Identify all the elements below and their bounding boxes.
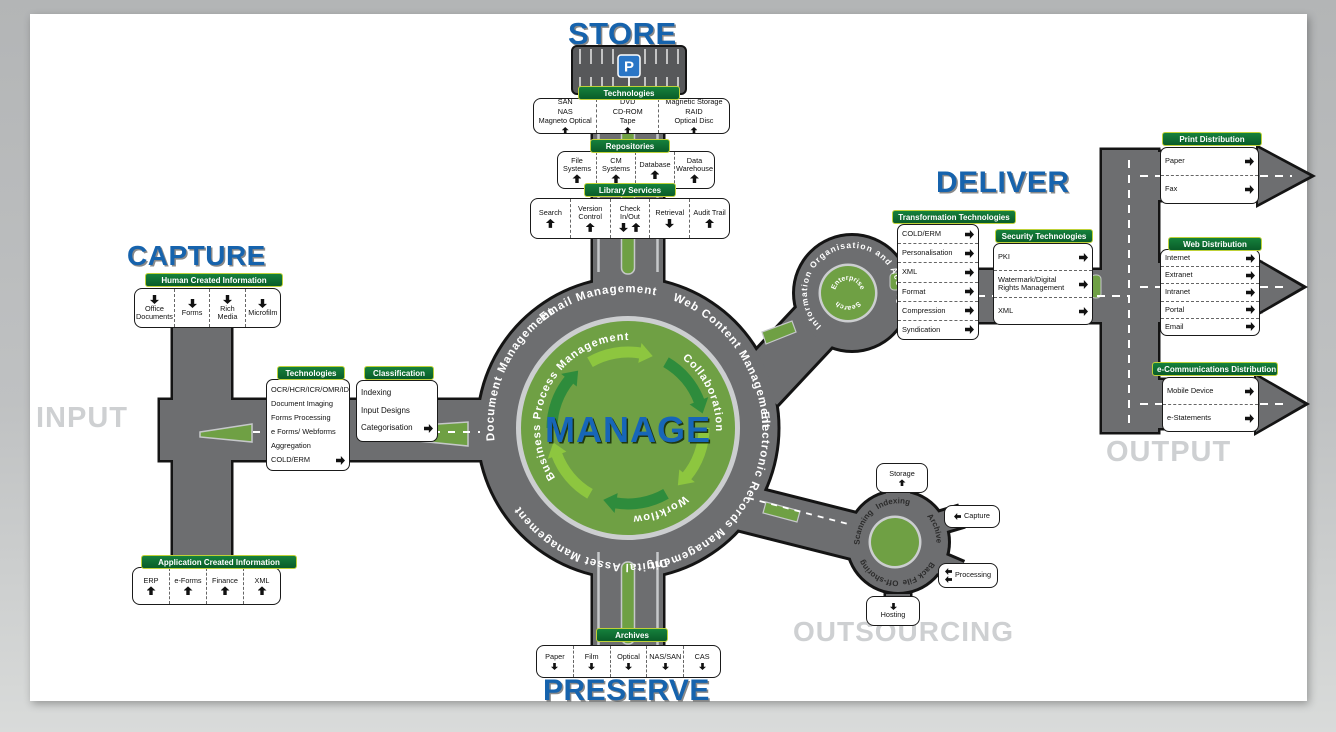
classification-box: Indexing Input Designs Categorisation [356,380,438,442]
up-arrow-icon [147,586,156,595]
cell-label: RAID [685,108,702,116]
down-arrow-icon [188,299,197,308]
human-created-box: Office Documents Forms Rich Media Microf… [134,288,281,328]
outsourcing-storage-box: Storage [876,463,928,493]
cell-label: Rich Media [211,305,243,321]
cell-label: Capture [964,512,990,520]
cell-label: Magneto Optical [539,117,592,125]
list-item: Film [573,646,610,677]
right-arrow-icon [965,306,974,315]
list-item: COLD/ERM [898,225,978,244]
row-label: Mobile Device [1167,387,1213,395]
list-item: Version Control [570,199,610,238]
down-arrow-icon [223,295,232,304]
application-created-box: ERP e-Forms Finance XML [132,567,281,605]
list-item: Hosting [867,597,919,625]
list-item: Processing [939,564,997,587]
row-label: Internet [1165,254,1190,262]
row-label: e Forms/ Webforms [271,428,336,436]
library-services-box: Search Version Control Check In/Out Retr… [530,198,730,239]
list-item: Email [1161,319,1259,335]
cell-label: Retrieval [655,209,684,217]
row-label: Intranet [1165,288,1190,296]
print-distribution-box: Paper Fax [1160,147,1259,204]
list-item: Aggregation [267,439,349,453]
cell-label: CM Systems [598,157,634,173]
list-item: XML [994,298,1092,324]
list-item: e-Forms [169,568,206,604]
up-arrow-icon [690,127,697,134]
list-item: ERP [133,568,169,604]
transformation-box: COLD/ERM Personalisation XML Format Comp… [897,224,979,340]
outsourcing-island [871,518,919,566]
cell-label: e-Forms [174,577,201,585]
down-arrow-icon [150,295,159,304]
preserve-title: PRESERVE [543,674,710,708]
web-distribution-box: Internet Extranet Intranet Portal Email [1160,249,1260,336]
right-arrow-icon [1079,253,1088,262]
cell-label: Database [639,161,670,169]
row-label: Compression [902,307,946,315]
cell-label: NAS/SAN [649,653,681,661]
row-label: Input Designs [361,407,410,416]
list-item: SAN NAS Magneto Optical [534,99,596,133]
cell-label: NAS [558,108,573,116]
up-arrow-icon [546,219,555,228]
right-arrow-icon [1245,185,1254,194]
down-arrow-icon [551,663,558,670]
cell-label: Processing [955,571,991,579]
down-arrow-icon [890,603,897,610]
capture-technologies-label: Technologies [277,366,345,380]
output-title: OUTPUT [1106,436,1231,469]
list-item: Capture [945,506,999,527]
up-arrow-icon [221,586,230,595]
up-arrow-icon [705,219,714,228]
list-item: Check In/Out [610,199,650,238]
down-arrow-icon [665,219,674,228]
store-technologies-label: Technologies [578,86,680,100]
store-technologies-box: SAN NAS Magneto Optical DVD CD-ROM Tape … [533,98,730,134]
cell-label: Hosting [881,611,906,619]
cell-label: Version Control [572,205,609,221]
down-arrow-icon [258,299,267,308]
enterprise-search-island [821,266,875,320]
store-title: STORE [568,16,677,52]
list-item: Paper [1161,148,1258,176]
row-label: Document Imaging [271,400,333,408]
row-label: XML [902,268,917,276]
row-label: Extranet [1165,271,1193,279]
cell-label: File Systems [559,157,595,173]
row-label: Syndication [902,326,940,334]
right-arrow-icon [1245,414,1254,423]
list-item: Document Imaging [267,397,349,411]
up-arrow-icon [624,127,631,134]
input-title: INPUT [36,402,128,435]
library-services-label: Library Services [584,183,676,197]
up-arrow-icon [631,223,640,232]
row-label: Forms Processing [271,414,331,422]
transformation-label: Transformation Technologies [892,210,1016,224]
right-arrow-icon [965,287,974,296]
right-arrow-icon [965,268,974,277]
cell-label: SAN [558,98,573,106]
list-item: NAS/SAN [646,646,683,677]
cell-label: Optical Disc [675,117,714,125]
outsourcing-capture-box: Capture [944,505,1000,528]
list-item: Internet [1161,250,1259,267]
list-item: Storage [877,464,927,492]
up-arrow-icon [184,586,193,595]
application-created-label: Application Created Information [141,555,297,569]
capture-title: CAPTURE [127,240,266,272]
security-label: Security Technologies [995,229,1093,243]
list-item: Office Documents [135,289,174,327]
list-item: Search [531,199,570,238]
down-arrow-icon [662,663,669,670]
cell-label: Search [539,209,562,217]
ecomm-distribution-label: e-Communications Distribution [1152,362,1278,376]
cell-label: Optical [617,653,640,661]
archives-label: Archives [596,628,668,642]
cell-label: ERP [143,577,158,585]
row-label: Indexing [361,389,391,398]
list-item: Finance [206,568,243,604]
right-arrow-icon [965,249,974,258]
up-arrow-icon [586,223,595,232]
ecomm-distribution-box: Mobile Device e-Statements [1162,377,1259,432]
list-item: Indexing [357,385,437,402]
list-item: Personalisation [898,244,978,263]
list-item: Forms [174,289,209,327]
list-item: DVD CD-ROM Tape [596,99,658,133]
left-arrow-icon [954,513,961,520]
list-item: Compression [898,302,978,321]
list-item: XML [243,568,280,604]
right-arrow-icon [1246,305,1255,314]
list-item: Data Warehouse [674,152,714,188]
cell-label: CD-ROM [613,108,643,116]
left-arrow-icon [945,568,952,575]
list-item: Portal [1161,302,1259,319]
svg-text:P: P [624,59,634,76]
list-item: Microfilm [245,289,280,327]
list-item: Syndication [898,321,978,339]
row-label: Fax [1165,185,1177,193]
up-arrow-icon [572,174,581,183]
cell-label: XML [254,577,269,585]
list-item: Audit Trail [689,199,729,238]
row-label: COLD/ERM [902,230,941,238]
list-item: Retrieval [649,199,689,238]
list-item: PKI [994,244,1092,271]
right-arrow-icon [965,325,974,334]
left-arrow-icon [945,576,952,583]
row-label: Aggregation [271,442,311,450]
right-arrow-icon [1246,254,1255,263]
outsourcing-hosting-box: Hosting [866,596,920,626]
up-arrow-icon [899,479,906,486]
right-arrow-icon [424,424,433,433]
cell-label: Finance [212,577,238,585]
cell-label: Data Warehouse [676,157,713,173]
repositories-label: Repositories [590,139,670,153]
list-item: Intranet [1161,284,1259,301]
down-arrow-icon [699,663,706,670]
right-arrow-icon [1245,157,1254,166]
capture-technologies-box: OCR/HCR/ICR/OMR/IDR Document Imaging For… [266,379,350,471]
list-item: Magnetic Storage RAID Optical Disc [658,99,729,133]
ecm-roadmap-diagram: { "titles":{"store":"STORE","capture":"C… [0,0,1336,732]
list-item: Watermark/Digital Rights Management [994,271,1092,298]
row-label: PKI [998,253,1010,261]
cell-label: CAS [695,653,710,661]
cell-label: Tape [620,117,636,125]
cell-label: Check In/Out [612,205,649,221]
up-arrow-icon [650,170,659,179]
row-label: Watermark/Digital Rights Management [998,276,1070,292]
right-arrow-icon [1079,280,1088,289]
right-arrow-icon [1246,322,1255,331]
row-label: XML [998,307,1013,315]
up-arrow-icon [562,127,569,134]
row-label: Format [902,288,925,296]
right-arrow-icon [1246,288,1255,297]
list-item: Format [898,283,978,302]
down-arrow-icon [625,663,632,670]
list-item: Input Designs [357,402,437,419]
security-box: PKI Watermark/Digital Rights Management … [993,243,1093,325]
right-arrow-icon [1246,271,1255,280]
cell-label: Microfilm [248,309,277,317]
right-arrow-icon [1245,387,1254,396]
row-label: Personalisation [902,249,953,257]
cell-label: Film [585,653,599,661]
row-label: OCR/HCR/ICR/OMR/IDR [271,386,350,394]
list-item: Mobile Device [1163,378,1258,405]
list-item: CAS [683,646,720,677]
list-item: e Forms/ Webforms [267,425,349,439]
cell-label: Forms [182,309,203,317]
list-item: XML [898,263,978,282]
human-created-label: Human Created Information [145,273,283,287]
row-label: Paper [1165,157,1185,165]
list-item: Forms Processing [267,411,349,425]
up-arrow-icon [258,586,267,595]
list-item: Extranet [1161,267,1259,284]
right-arrow-icon [965,230,974,239]
web-distribution-label: Web Distribution [1168,237,1262,251]
row-label: COLD/ERM [271,456,310,464]
archives-box: Paper Film Optical NAS/SAN CAS [536,645,721,678]
right-arrow-icon [1079,307,1088,316]
manage-text: MANAGE [545,409,711,450]
row-label: Portal [1165,306,1184,314]
list-item: COLD/ERM [267,453,349,467]
down-arrow-icon [588,663,595,670]
list-item: Optical [610,646,647,677]
list-item: OCR/HCR/ICR/OMR/IDR [267,383,349,397]
manage-title: MANAGE MANAGE [545,409,713,452]
list-item: Paper [537,646,573,677]
cell-label: Audit Trail [693,209,725,217]
down-arrow-icon [619,223,628,232]
row-label: Categorisation [361,424,413,433]
up-arrow-icon [690,174,699,183]
print-distribution-label: Print Distribution [1162,132,1262,146]
cell-label: Paper [545,653,564,661]
cell-label: Storage [889,470,915,478]
deliver-title: DELIVER [936,166,1070,200]
list-item: Rich Media [209,289,244,327]
right-arrow-icon [336,456,345,465]
list-item: e-Statements [1163,405,1258,431]
list-item: Categorisation [357,420,437,437]
outsourcing-processing-box: Processing [938,563,998,588]
list-item: Fax [1161,176,1258,203]
classification-label: Classification [364,366,434,380]
row-label: e-Statements [1167,414,1211,422]
cell-label: Office Documents [136,305,173,321]
row-label: Email [1165,323,1183,331]
